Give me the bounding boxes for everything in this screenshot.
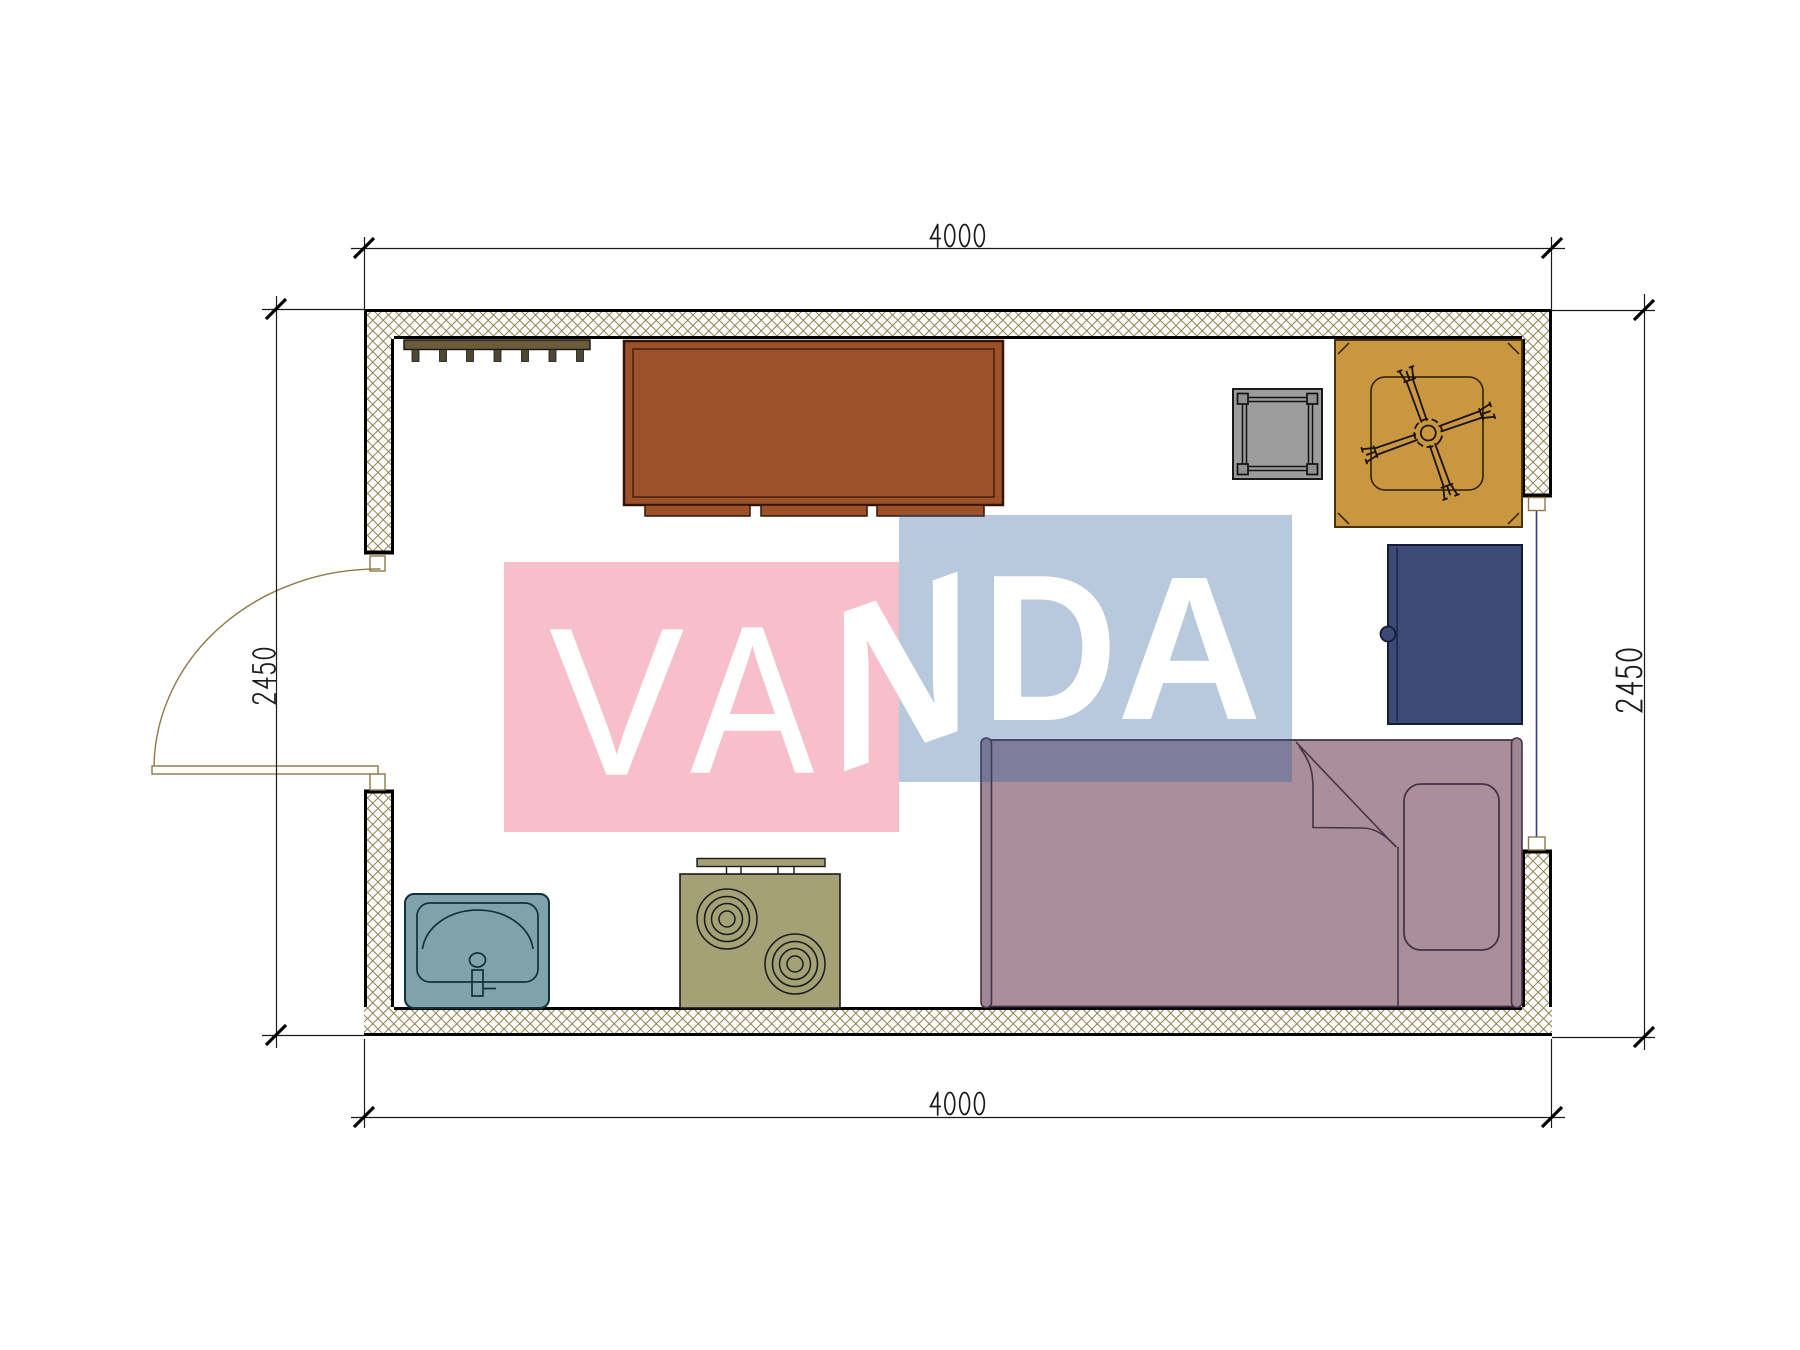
svg-text:A: A: [691, 583, 813, 817]
svg-text:D: D: [981, 532, 1117, 765]
svg-text:V: V: [550, 586, 683, 819]
svg-text:N: N: [831, 518, 971, 826]
svg-text:A: A: [1117, 533, 1262, 763]
